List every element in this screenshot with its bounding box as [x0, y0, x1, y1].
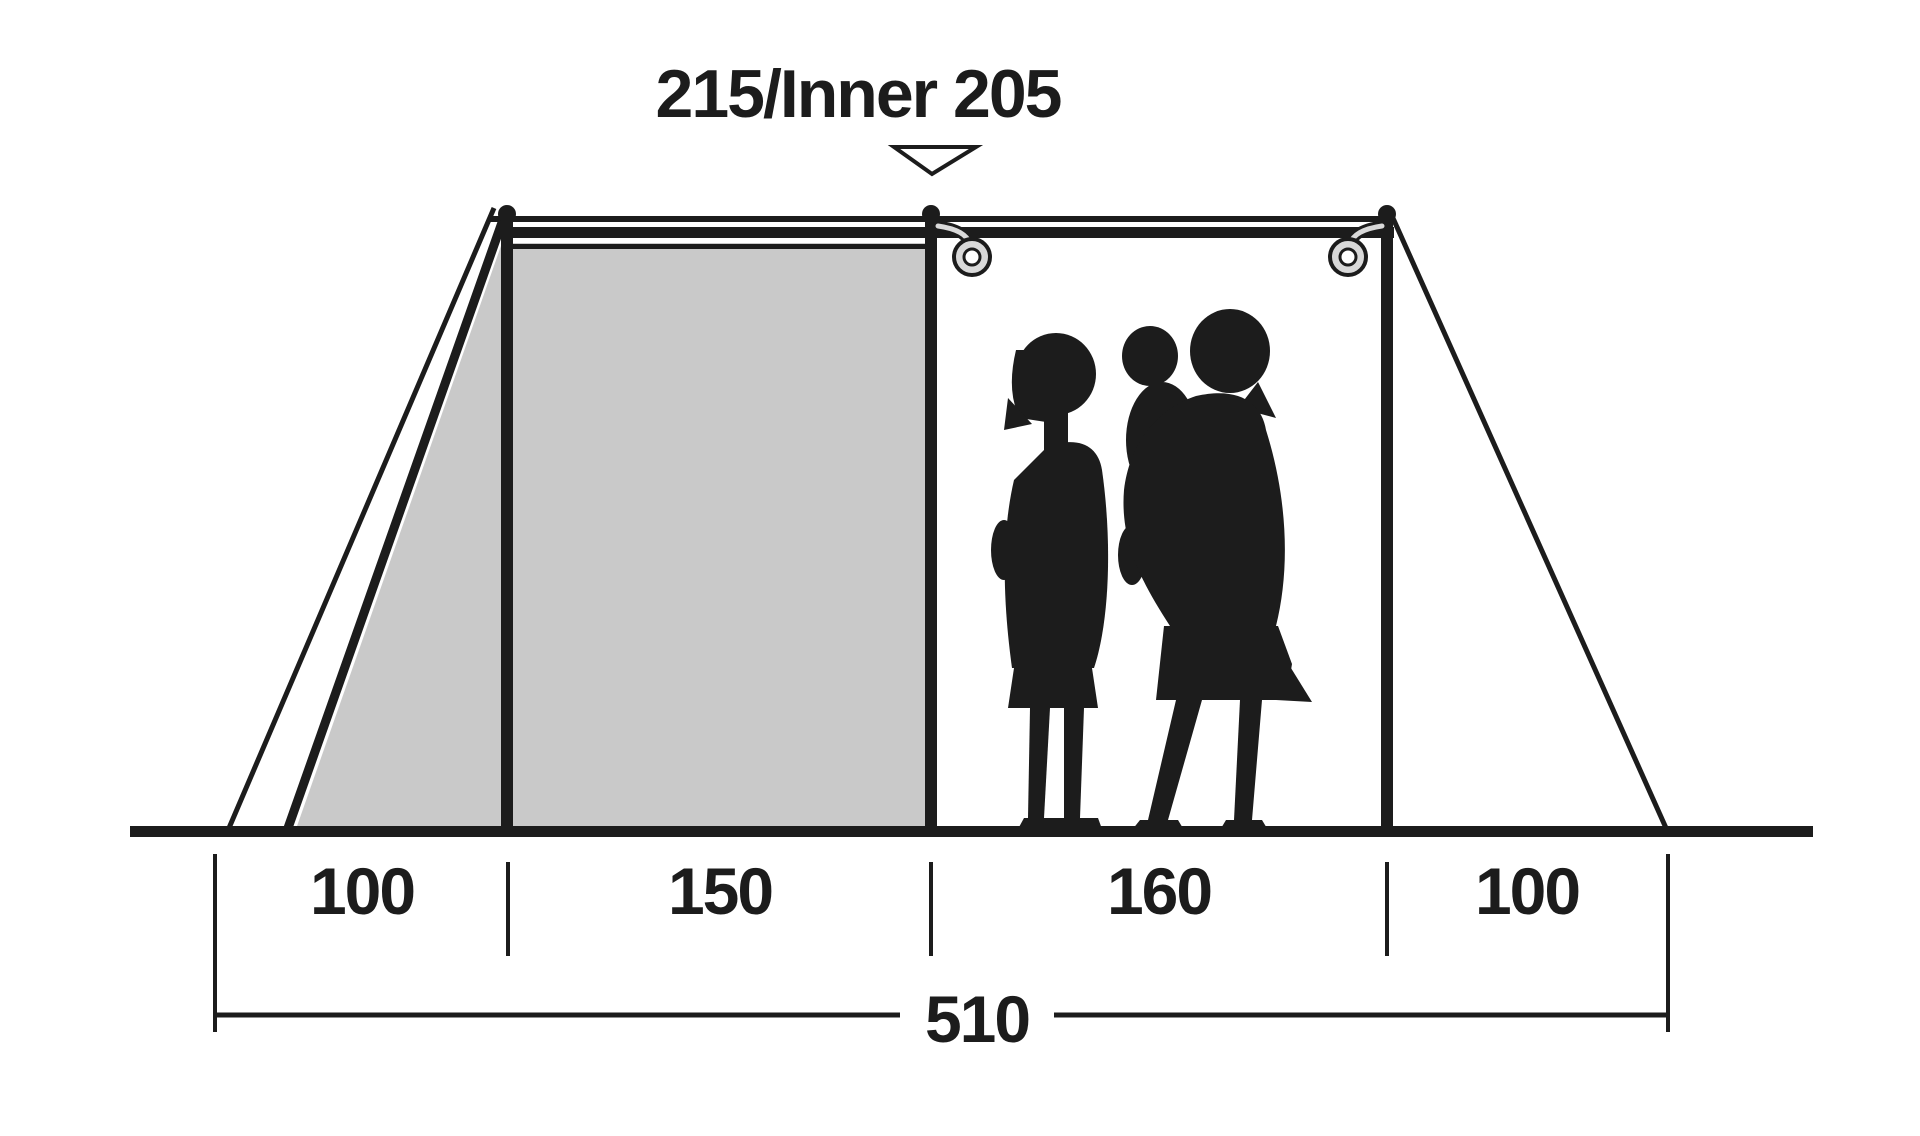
- right-pole-cap: [1378, 205, 1396, 223]
- people-silhouettes: [991, 309, 1312, 830]
- adult-silhouette: [991, 333, 1108, 829]
- ring-inner: [1340, 249, 1356, 265]
- tent-dimension-diagram: 215/Inner 205 100 150 160 100 510: [0, 0, 1920, 1136]
- inner-tent-top-edge: [507, 244, 931, 249]
- center-pole: [925, 212, 937, 832]
- adult-with-child-silhouette: [1118, 309, 1312, 830]
- ring-inner: [964, 249, 980, 265]
- dimension-label-living-area: 160: [1107, 858, 1211, 924]
- center-pole-cap: [922, 205, 940, 223]
- right-guy-line: [1392, 216, 1666, 828]
- left-pole-cap: [498, 205, 516, 223]
- dimension-label-inner-tent: 150: [668, 858, 772, 924]
- right-pole: [1381, 212, 1393, 832]
- ground-line: [130, 826, 1813, 837]
- total-dimension-label: 510: [925, 986, 1029, 1052]
- left-pole: [501, 212, 513, 832]
- tent-diagram-svg: [0, 0, 1920, 1136]
- dimension-label-left-porch: 100: [310, 858, 414, 924]
- title-label: 215/Inner 205: [656, 60, 1061, 128]
- dimension-label-right-porch: 100: [1475, 858, 1579, 924]
- down-pointer-icon: [894, 147, 976, 174]
